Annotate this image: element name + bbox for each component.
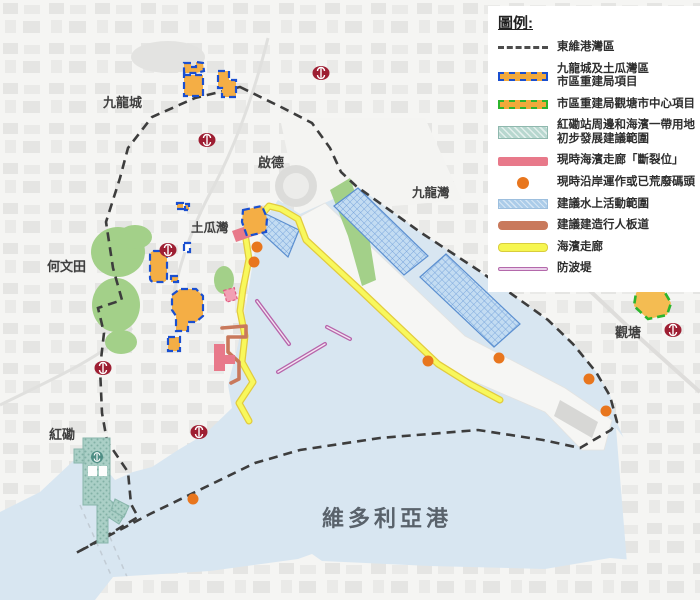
mtr-station-icon (191, 425, 208, 439)
legend-label: 建議水上活動範圍 (557, 198, 649, 212)
legend-swatch-water-activity (498, 199, 548, 209)
legend-swatch-boardwalk (498, 221, 548, 230)
legend-item-promenade: 海濱走廊 (498, 241, 700, 255)
label-ho-man-tin: 何文田 (47, 259, 86, 274)
legend-swatch-boundary (498, 46, 548, 49)
legend-item-boundary: 東維港灣區 (498, 41, 700, 55)
label-hung-hom: 紅磡 (49, 427, 75, 442)
label-kowloon-city: 九龍城 (102, 95, 142, 110)
map-screenshot: 九龍城 啟德 土瓜灣 何文田 九龍灣 觀塘 紅磡 維多利亞港 圖例: 東維港灣區… (0, 0, 700, 600)
mtr-station-icon (160, 243, 177, 257)
legend-item-ura-green: 市區重建局觀塘市中心項目 (498, 98, 700, 112)
legend-label: 九龍城及土瓜灣區 市區重建局項目 (557, 63, 649, 90)
legend-item-pier: 現時沿岸運作或已荒廢碼頭 (498, 176, 700, 190)
legend-item-water-activity: 建議水上活動範圍 (498, 198, 700, 212)
legend-swatch-ura-blue (498, 72, 548, 81)
legend-label: 紅磡站周邊和海濱一帶用地 初步發展建議範圍 (557, 119, 695, 146)
label-kowloon-bay: 九龍灣 (411, 185, 450, 200)
label-kwun-tong: 觀塘 (615, 325, 641, 340)
label-victoria-harbour: 維多利亞港 (322, 506, 452, 531)
legend-swatch-hunghom (498, 126, 548, 139)
legend-label: 建議建造行人板道 (557, 219, 649, 233)
legend-label: 市區重建局觀塘市中心項目 (557, 98, 695, 112)
mtr-station-icon (95, 361, 112, 375)
legend-label: 海濱走廊 (557, 241, 603, 255)
mtr-station-icon (199, 133, 216, 147)
legend-swatch-breakwater (498, 267, 548, 271)
legend-item-break: 現時海濱走廊「斷裂位」 (498, 154, 700, 168)
legend-label: 現時海濱走廊「斷裂位」 (557, 154, 684, 168)
legend-label: 現時沿岸運作或已荒廢碼頭 (557, 176, 695, 190)
legend-item-ura-blue: 九龍城及土瓜灣區 市區重建局項目 (498, 63, 700, 90)
mtr-station-icon (313, 66, 330, 80)
legend-title: 圖例: (498, 12, 700, 33)
legend-swatch-pier (498, 177, 548, 189)
legend-label: 東維港灣區 (557, 41, 615, 55)
legend-swatch-ura-green (498, 100, 548, 109)
label-kai-tak: 啟德 (258, 155, 284, 170)
pier-dot-icon (517, 177, 529, 189)
rail-station-icon (91, 451, 103, 463)
legend-item-hunghom: 紅磡站周邊和海濱一帶用地 初步發展建議範圍 (498, 119, 700, 146)
stadium-inner (283, 173, 309, 199)
mtr-station-icon (665, 323, 682, 337)
legend-item-boardwalk: 建議建造行人板道 (498, 219, 700, 233)
legend-swatch-break (498, 157, 548, 166)
legend-panel: 圖例: 東維港灣區 九龍城及土瓜灣區 市區重建局項目 市區重建局觀塘市中心項目 … (488, 6, 700, 292)
label-to-kwa-wan: 土瓜灣 (191, 220, 229, 235)
legend-item-breakwater: 防波堤 (498, 262, 700, 276)
legend-swatch-promenade (498, 243, 548, 252)
legend-label: 防波堤 (557, 262, 592, 276)
